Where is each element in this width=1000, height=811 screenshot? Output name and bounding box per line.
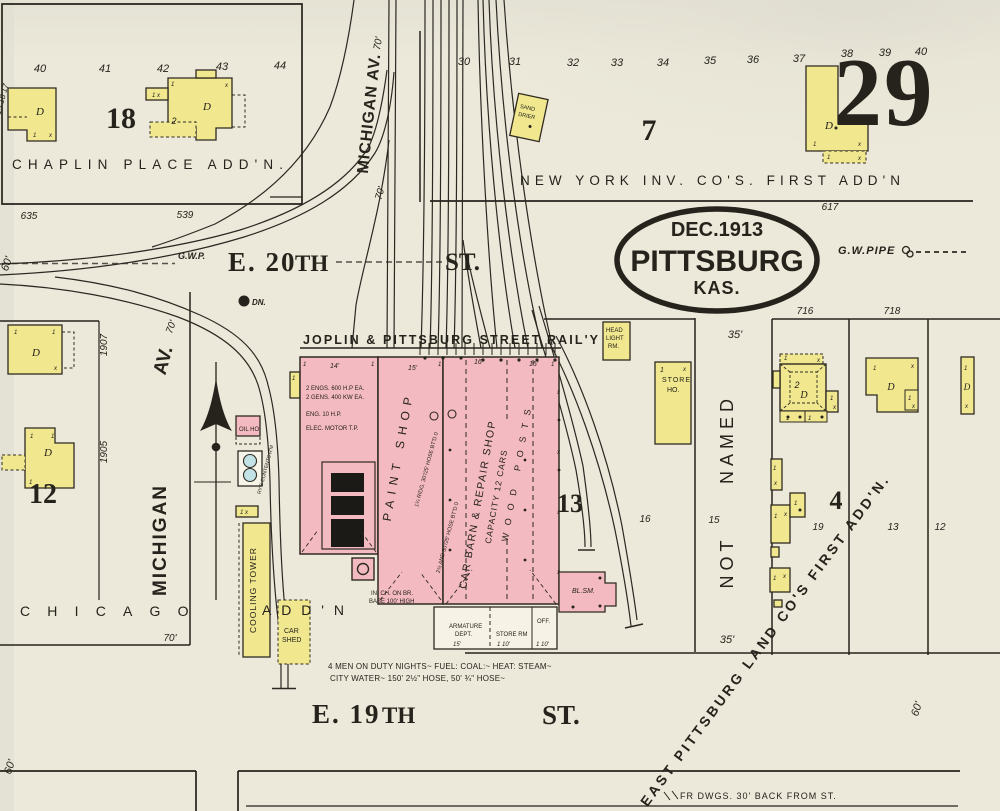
svg-text:1: 1: [551, 362, 554, 368]
svg-text:19: 19: [812, 522, 824, 533]
svg-text:1: 1: [794, 501, 797, 507]
svg-text:36: 36: [747, 54, 760, 66]
svg-text:ARMATURE: ARMATURE: [449, 624, 482, 630]
svg-text:ST.: ST.: [445, 249, 480, 276]
svg-text:ADD'N: ADD'N: [262, 602, 352, 618]
svg-text:D: D: [799, 390, 808, 401]
svg-text:G.W.P.: G.W.P.: [178, 251, 205, 261]
svg-text:1: 1: [964, 366, 967, 372]
svg-text:1 x: 1 x: [240, 510, 249, 516]
svg-text:716: 716: [797, 306, 814, 317]
svg-text:32: 32: [567, 57, 579, 69]
svg-text:HO.: HO.: [667, 387, 680, 394]
svg-text:1: 1: [51, 434, 54, 440]
svg-text:12: 12: [29, 479, 57, 510]
svg-text:1: 1: [52, 330, 55, 336]
svg-text:ST.: ST.: [542, 700, 580, 730]
svg-text:43: 43: [216, 61, 229, 73]
svg-text:35': 35': [720, 634, 735, 646]
svg-text:29: 29: [834, 39, 935, 146]
svg-text:18: 18: [106, 102, 136, 135]
svg-text:1: 1: [773, 466, 776, 472]
svg-text:7: 7: [642, 114, 657, 147]
svg-text:D: D: [963, 382, 971, 392]
svg-text:1: 1: [773, 576, 776, 582]
svg-text:34: 34: [657, 57, 669, 69]
svg-text:1: 1: [827, 155, 830, 161]
svg-text:D: D: [43, 447, 52, 459]
svg-text:1: 1: [14, 330, 17, 336]
svg-text:BASE 100' HIGH: BASE 100' HIGH: [369, 599, 415, 605]
svg-text:33: 33: [611, 57, 624, 69]
svg-text:718: 718: [884, 306, 901, 317]
svg-text:MICHIGAN: MICHIGAN: [150, 484, 171, 596]
svg-text:16: 16: [639, 514, 651, 525]
svg-text:1907: 1907: [99, 333, 110, 356]
svg-text:1905: 1905: [99, 440, 110, 463]
svg-text:COOLING TOWER: COOLING TOWER: [248, 547, 258, 633]
svg-text:TH: TH: [295, 251, 328, 276]
svg-text:13: 13: [557, 489, 583, 518]
svg-text:BL.SM.: BL.SM.: [572, 588, 595, 595]
svg-text:RM.: RM.: [608, 344, 619, 350]
svg-text:D: D: [886, 382, 895, 393]
svg-text:OFF.: OFF.: [537, 619, 550, 625]
svg-text:1: 1: [873, 366, 876, 372]
svg-text:40: 40: [34, 63, 47, 75]
svg-text:SHED: SHED: [282, 637, 301, 644]
svg-text:15': 15': [408, 365, 418, 372]
svg-text:1: 1: [438, 362, 441, 368]
svg-text:E. 19: E. 19: [312, 699, 381, 729]
svg-text:15': 15': [529, 361, 539, 368]
svg-text:KAS.: KAS.: [693, 278, 740, 298]
svg-text:4 MEN ON DUTY NIGHTS~ FUEL: CO: 4 MEN ON DUTY NIGHTS~ FUEL: COAL:~ HEAT:…: [328, 662, 552, 671]
svg-text:1: 1: [808, 416, 811, 422]
svg-text:CITY WATER~ 150' 2½" HOSE, 50: CITY WATER~ 150' 2½" HOSE, 50' ¾" HOSE~: [330, 674, 505, 683]
svg-text:35': 35': [728, 329, 743, 341]
svg-text:1: 1: [813, 142, 816, 148]
svg-text:15': 15': [453, 642, 462, 648]
svg-text:44: 44: [274, 60, 286, 72]
svg-text:STORE: STORE: [662, 377, 691, 384]
svg-text:ENG. 10 H.P.: ENG. 10 H.P.: [306, 412, 342, 418]
svg-text:CHAPLIN PLACE ADD'N.: CHAPLIN PLACE ADD'N.: [12, 157, 288, 172]
svg-text:FR DWGS. 30' BACK FROM ST.: FR DWGS. 30' BACK FROM ST.: [680, 791, 837, 801]
svg-text:1: 1: [33, 133, 36, 139]
svg-text:D: D: [31, 347, 40, 359]
svg-text:4: 4: [830, 486, 843, 515]
svg-text:14': 14': [330, 363, 340, 370]
svg-text:NOT: NOT: [717, 536, 737, 589]
svg-text:35: 35: [704, 55, 717, 67]
svg-text:CAR: CAR: [284, 628, 299, 635]
svg-text:1: 1: [784, 356, 787, 362]
svg-text:OIL HO.: OIL HO.: [239, 427, 261, 433]
svg-text:1: 1: [29, 480, 32, 486]
svg-text:D: D: [824, 120, 833, 132]
svg-text:30: 30: [458, 56, 471, 68]
svg-text:41: 41: [99, 63, 111, 75]
svg-text:635: 635: [21, 211, 38, 222]
svg-text:IN. CH. ON BR.: IN. CH. ON BR.: [371, 591, 413, 597]
svg-text:JOPLIN & PITTSBURG STREET RAIL: JOPLIN & PITTSBURG STREET RAIL'Y: [303, 333, 599, 347]
svg-text:LIGHT: LIGHT: [606, 336, 624, 342]
svg-text:1: 1: [303, 362, 306, 368]
svg-text:70': 70': [163, 633, 177, 644]
svg-text:1: 1: [292, 376, 295, 382]
svg-text:PITTSBURG: PITTSBURG: [630, 245, 803, 278]
svg-text:1: 1: [908, 396, 911, 402]
svg-text:1 10': 1 10': [536, 642, 550, 648]
svg-text:1: 1: [171, 82, 174, 88]
svg-text:1: 1: [30, 434, 33, 440]
svg-text:2: 2: [170, 116, 176, 126]
svg-text:2 GENS. 400 KW EA.: 2 GENS. 400 KW EA.: [306, 395, 364, 401]
svg-text:1 x: 1 x: [152, 93, 161, 99]
svg-text:DEPT.: DEPT.: [455, 632, 472, 638]
svg-text:CHICAGO: CHICAGO: [20, 603, 206, 619]
svg-text:D: D: [202, 101, 211, 113]
svg-text:ELEC. MOTOR T.P.: ELEC. MOTOR T.P.: [306, 426, 359, 432]
svg-text:NEW YORK INV. CO'S. FIRST ADD': NEW YORK INV. CO'S. FIRST ADD'N: [520, 173, 905, 188]
svg-text:NAMED: NAMED: [717, 394, 737, 484]
svg-text:1: 1: [830, 396, 833, 402]
svg-text:37: 37: [793, 53, 806, 65]
svg-text:1: 1: [774, 514, 777, 520]
svg-text:13: 13: [887, 522, 899, 533]
svg-text:617: 617: [822, 202, 839, 213]
svg-text:HEAD: HEAD: [606, 328, 623, 334]
svg-text:1: 1: [660, 367, 664, 374]
svg-text:539: 539: [177, 210, 194, 221]
svg-text:1 10': 1 10': [497, 642, 511, 648]
svg-text:G.W.PIPE: G.W.PIPE: [838, 245, 895, 257]
svg-text:E. 20: E. 20: [228, 247, 297, 277]
svg-text:12: 12: [934, 522, 946, 533]
svg-text:2 ENGS. 600 H.P EA.: 2 ENGS. 600 H.P EA.: [306, 386, 365, 392]
svg-text:15: 15: [708, 515, 720, 526]
svg-text:1: 1: [371, 362, 374, 368]
svg-text:D: D: [35, 106, 44, 118]
svg-text:STORE RM: STORE RM: [496, 632, 528, 638]
svg-text:DEC.1913: DEC.1913: [671, 219, 763, 241]
svg-text:16': 16': [474, 359, 484, 366]
svg-text:2: 2: [793, 380, 799, 390]
svg-text:DN.: DN.: [252, 298, 266, 307]
svg-text:31: 31: [509, 56, 521, 68]
svg-text:42: 42: [157, 63, 169, 75]
svg-text:TH: TH: [382, 703, 415, 728]
